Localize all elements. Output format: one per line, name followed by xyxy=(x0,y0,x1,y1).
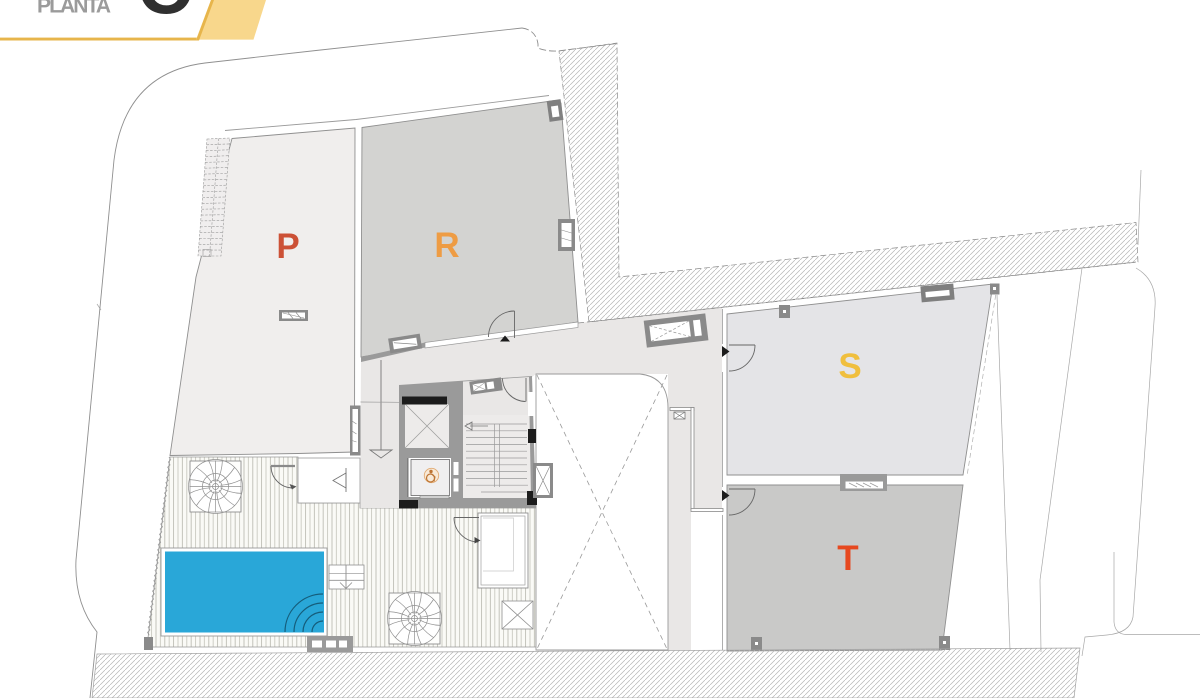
svg-text:P: P xyxy=(276,227,299,266)
svg-text:C: C xyxy=(137,0,192,31)
svg-text:R: R xyxy=(434,226,459,265)
svg-text:S: S xyxy=(838,347,861,386)
svg-text:PLANTA: PLANTA xyxy=(37,0,111,18)
svg-text:T: T xyxy=(837,539,858,578)
